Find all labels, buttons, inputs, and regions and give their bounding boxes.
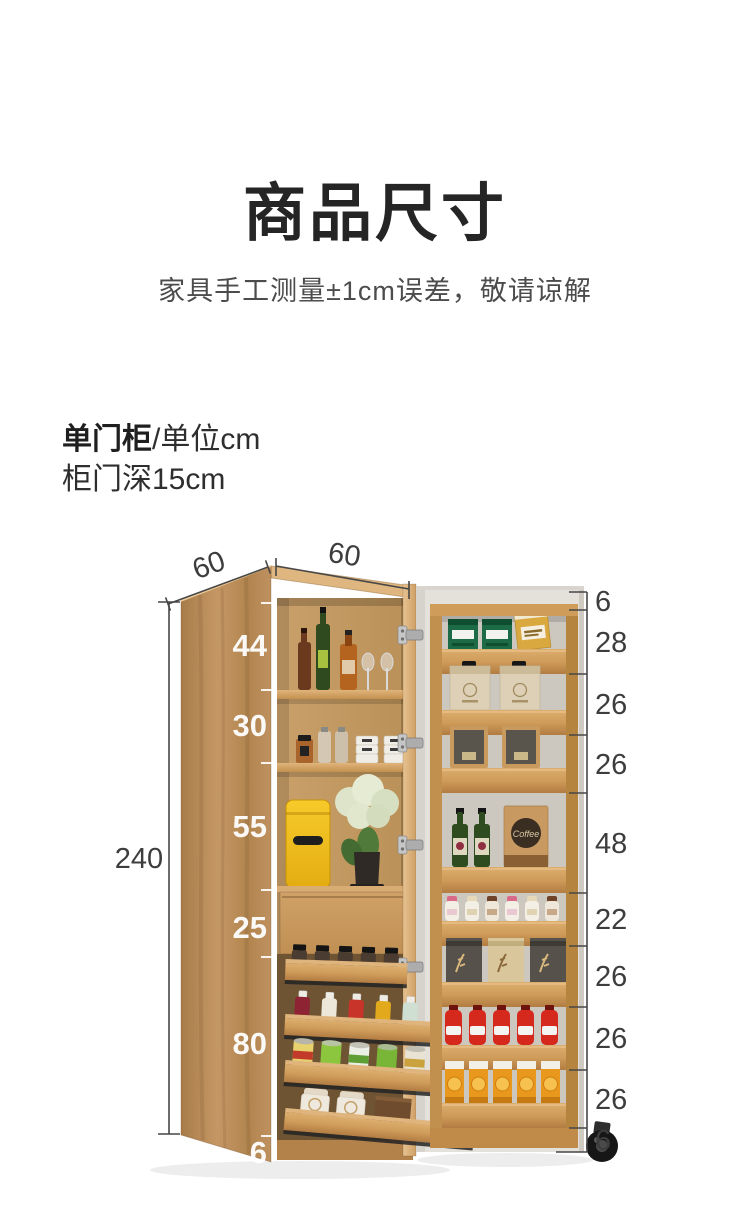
- shelf-rail: [434, 867, 574, 893]
- door-shelf-unit: Coffee: [430, 604, 618, 1162]
- coffee-bag-label: Coffee: [513, 829, 540, 839]
- door-floor-shadow: [417, 1153, 593, 1167]
- door-section-label: 22: [595, 904, 627, 936]
- dim-label-width: 60: [326, 537, 363, 574]
- shelf-board: [277, 690, 413, 699]
- door-section-label: 26: [595, 961, 627, 993]
- cabinet-section-label: 80: [233, 1026, 267, 1061]
- cabinet-section-label: 55: [233, 809, 267, 844]
- pullout-tray-2: [284, 990, 436, 1047]
- unit-right-stile: [566, 604, 578, 1148]
- door-section-label: 6: [595, 586, 611, 618]
- juice-cartons: [445, 1061, 560, 1103]
- cabinet-section-label: 25: [233, 910, 267, 945]
- shelf-rail: [434, 982, 574, 1007]
- door-section-label: 26: [595, 689, 627, 721]
- wood-grain: [200, 595, 203, 1140]
- unit-top-rail: [430, 604, 578, 616]
- door-section-label: 26: [595, 1084, 627, 1116]
- shelf-rail: [434, 768, 574, 793]
- dim-label-height: 240: [115, 843, 163, 875]
- coffee-bag: Coffee: [504, 806, 548, 867]
- unit-left-stile: [430, 604, 442, 1148]
- shelf-rail: [434, 1103, 574, 1128]
- shelf-board: [277, 763, 413, 772]
- cereal-boxes: [446, 938, 566, 982]
- cabinet-section-label: 44: [233, 628, 268, 663]
- shelf-shadow: [277, 699, 413, 704]
- bread-bin: [286, 800, 330, 888]
- door-section-label: 28: [595, 627, 627, 659]
- door-section-label: 48: [595, 828, 627, 860]
- cabinet-illustration: Coffee: [0, 0, 750, 1215]
- cabinet-floor-shadow: [150, 1161, 450, 1179]
- pullout-tray-1: [285, 944, 408, 988]
- unit-base: [430, 1128, 578, 1148]
- door-section-label: 26: [595, 1023, 627, 1055]
- shelf-shadow: [277, 772, 413, 777]
- door-section-label: 26: [595, 749, 627, 781]
- product-dimensions-page: 商品尺寸 家具手工测量±1cm误差，敬请谅解 单门柜/单位cm 柜门深15cm: [0, 0, 750, 1215]
- dim-label-depth: 60: [188, 545, 229, 586]
- door-section-label: 6: [595, 1125, 611, 1157]
- wood-grain: [246, 578, 249, 1154]
- cabinet-section-label: 30: [233, 708, 267, 743]
- drawer-top-edge: [277, 886, 413, 892]
- cabinet-section-label: 6: [250, 1135, 267, 1170]
